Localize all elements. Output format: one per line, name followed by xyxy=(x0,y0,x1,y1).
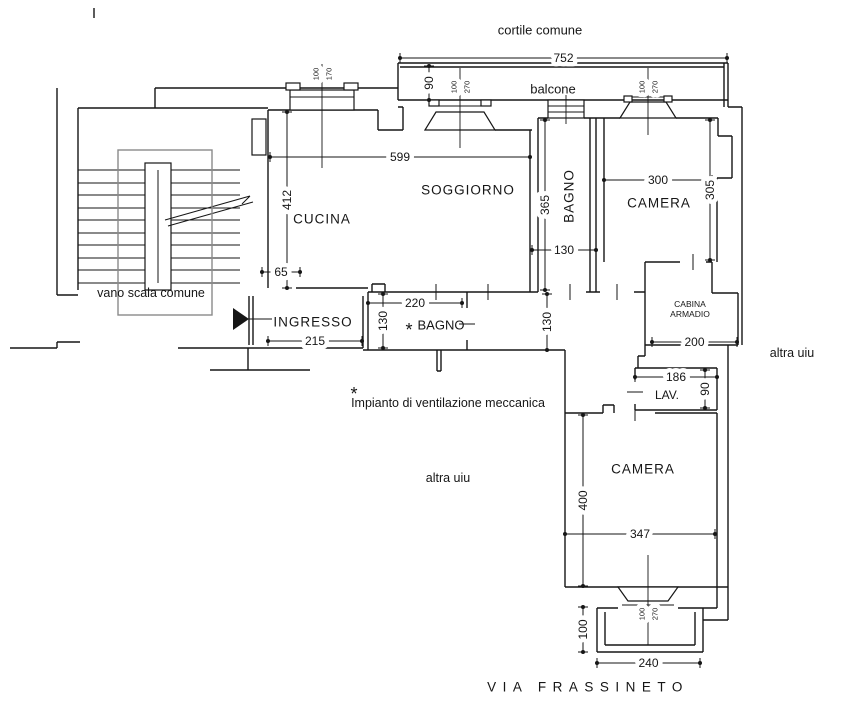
dim-240-balconcino-value: 240 xyxy=(638,656,658,670)
dim-365-bagno: 365 xyxy=(538,118,552,292)
window-tag-camera-top-height: 270 xyxy=(651,81,660,94)
bedroom-top-door-cap xyxy=(624,96,632,102)
dim-305-camera-value: 305 xyxy=(703,180,717,200)
label-altra-uiu-right: altra uiu xyxy=(770,346,815,360)
dim-90-lav: 90 xyxy=(698,368,712,410)
bedroom-top-door-cap xyxy=(664,96,672,102)
window-tag-camera-top-width: 100 xyxy=(638,81,647,94)
label-balcone: balcone xyxy=(530,82,576,97)
window-tag-cucina-height: 170 xyxy=(325,68,334,81)
dim-220-bagno2: 220 xyxy=(366,296,464,310)
window-tag-camera-top: 100270 xyxy=(638,81,660,94)
dim-90-balcone: 90 xyxy=(422,64,436,102)
window-tag-cucina: 100170 xyxy=(312,68,334,81)
dim-130-bagno2-altezza: 130 xyxy=(376,292,390,350)
dim-90-lav-value: 90 xyxy=(698,382,712,396)
dim-240-balconcino: 240 xyxy=(595,656,702,670)
dim-130-bagno-larghezza-value: 130 xyxy=(554,243,574,257)
dim-130-bagno2-altezza-value: 130 xyxy=(376,311,390,331)
dim-300-camera: 300 xyxy=(602,173,714,187)
label-cabina-armadio-2: ARMADIO xyxy=(670,309,710,319)
living-door-cap xyxy=(481,100,491,106)
dim-412-cucina-value: 412 xyxy=(280,190,294,210)
label-altra-uiu-bottom: altra uiu xyxy=(426,471,471,485)
dim-752-balcone-value: 752 xyxy=(553,51,573,65)
kitchen-window-cap xyxy=(344,83,358,90)
label-bagno-star: BAGNO xyxy=(418,318,465,333)
dim-130-corridoio-value: 130 xyxy=(540,312,554,332)
dim-65-passaggio-value: 65 xyxy=(274,265,288,279)
dim-347-camera2-value: 347 xyxy=(630,527,650,541)
label-cortile-comune: cortile comune xyxy=(498,23,583,38)
label-cucina: CUCINA xyxy=(293,212,351,227)
dim-186-lav: 186 xyxy=(633,370,719,384)
label-soggiorno: SOGGIORNO xyxy=(421,183,515,198)
label-camera-top: CAMERA xyxy=(627,196,691,211)
dim-300-camera-value: 300 xyxy=(648,173,668,187)
dim-365-bagno-value: 365 xyxy=(538,195,552,215)
dim-200-cabina: 200 xyxy=(650,335,739,349)
window-tag-cucina-width: 100 xyxy=(312,68,321,81)
dimension-lines-layer: 7529059941236513030030565215220130130200… xyxy=(260,51,739,670)
dim-100-balconcino-value: 100 xyxy=(576,619,590,639)
dim-215-ingresso-value: 215 xyxy=(305,334,325,348)
dim-90-balcone-value: 90 xyxy=(422,76,436,90)
dim-305-camera: 305 xyxy=(703,118,717,262)
entrance-arrow-icon xyxy=(233,308,249,330)
dim-599-soggiorno: 599 xyxy=(268,150,532,164)
dim-412-cucina: 412 xyxy=(280,110,294,290)
windows xyxy=(286,64,678,645)
window-tag-soggiorno-width: 100 xyxy=(450,81,459,94)
label-ingresso: INGRESSO xyxy=(273,315,352,330)
dim-220-bagno2-value: 220 xyxy=(405,296,425,310)
dim-347-camera2: 347 xyxy=(563,527,717,541)
dim-130-corridoio: 130 xyxy=(540,292,554,352)
window-tag-soggiorno-height: 270 xyxy=(463,81,472,94)
dim-599-soggiorno-value: 599 xyxy=(390,150,410,164)
window-tag-soggiorno: 100270 xyxy=(450,81,472,94)
label-bagno-top: BAGNO xyxy=(562,169,577,223)
dim-100-balconcino: 100 xyxy=(576,605,590,654)
window-centerlines xyxy=(322,64,648,645)
label-via-frassineto: VIA FRASSINETO xyxy=(487,680,689,695)
label-note-ventilazione: Impianto di ventilazione meccanica xyxy=(351,396,545,410)
label-cabina-armadio-1: CABINA xyxy=(674,299,706,309)
window-tag-camera-bottom-width: 100 xyxy=(638,608,647,621)
floor-plan-svg: 7529059941236513030030565215220130130200… xyxy=(0,0,843,728)
dim-65-passaggio: 65 xyxy=(260,265,302,279)
dim-130-bagno-larghezza: 130 xyxy=(530,243,598,257)
label-camera-bottom: CAMERA xyxy=(611,462,675,477)
stair-direction-arrow xyxy=(165,196,253,226)
label-vano-scala-comune: vano scala comune xyxy=(97,286,205,300)
dim-400-camera2: 400 xyxy=(576,413,590,588)
dim-200-cabina-value: 200 xyxy=(684,335,704,349)
duct-shaft xyxy=(252,119,266,155)
floor-plan-page: 7529059941236513030030565215220130130200… xyxy=(0,0,843,728)
kitchen-window-cap xyxy=(286,83,300,90)
window-tag-camera-bottom: 100270 xyxy=(638,608,660,621)
window-tag-camera-bottom-height: 270 xyxy=(651,608,660,621)
label-lav: LAV. xyxy=(655,388,679,402)
dim-215-ingresso: 215 xyxy=(266,334,364,348)
dim-186-lav-value: 186 xyxy=(666,370,686,384)
dim-400-camera2-value: 400 xyxy=(576,490,590,510)
label-bagno-star-asterisk: * xyxy=(405,320,412,340)
